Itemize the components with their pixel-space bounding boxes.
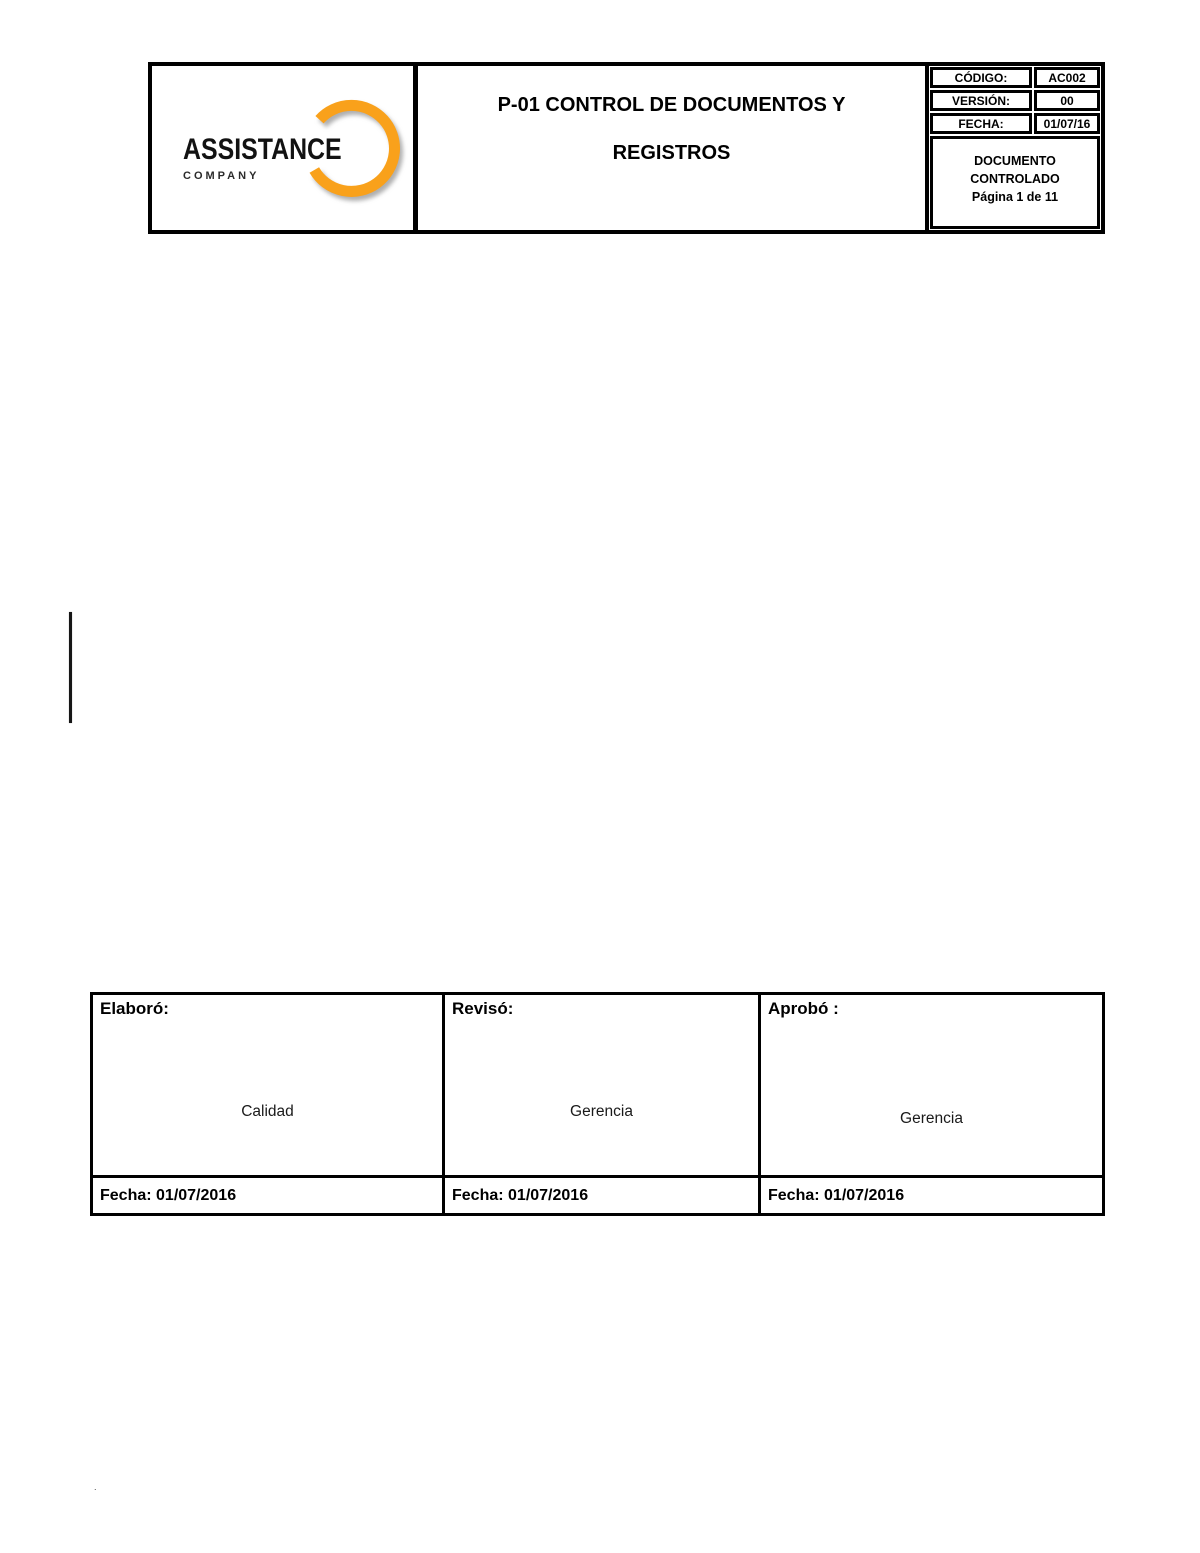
- company-subtitle-text: COMPANY: [183, 170, 259, 182]
- stray-period: .: [94, 1483, 97, 1492]
- controlled-document-note-line2: CONTROLADO: [933, 170, 1097, 188]
- signoff-role-elaboro: Elaboró:: [100, 999, 169, 1019]
- signoff-role-aprobo: Aprobó :: [768, 999, 839, 1019]
- signoff-date-cell-reviso: Fecha: 01/07/2016: [445, 1178, 761, 1213]
- signoff-date-aprobo: Fecha: 01/07/2016: [768, 1187, 904, 1205]
- document-title-line2: REGISTROS: [613, 142, 731, 165]
- meta-row-codigo: CÓDIGO: AC002: [930, 67, 1100, 88]
- meta-label-codigo: CÓDIGO:: [930, 67, 1032, 88]
- signoff-role-reviso: Revisó:: [452, 999, 513, 1019]
- controlled-document-note-line1: DOCUMENTO: [933, 152, 1097, 170]
- document-page: ASSISTANCE COMPANY P-01 CONTROL DE DOCUM…: [0, 0, 1200, 1553]
- document-meta-box: CÓDIGO: AC002 VERSIÓN: 00 FECHA: 01/07/1…: [929, 66, 1101, 230]
- controlled-document-note: DOCUMENTO CONTROLADO Página 1 de 11: [930, 136, 1100, 229]
- signoff-date-cell-elaboro: Fecha: 01/07/2016: [93, 1178, 445, 1213]
- document-title: P-01 CONTROL DE DOCUMENTOS Y REGISTROS: [418, 66, 929, 230]
- meta-row-version: VERSIÓN: 00: [930, 90, 1100, 111]
- signoff-row-names: Elaboró: Calidad Revisó: Gerencia Aprobó…: [93, 995, 1102, 1175]
- signoff-cell-reviso: Revisó: Gerencia: [445, 995, 761, 1175]
- company-logo: ASSISTANCE COMPANY: [152, 66, 418, 230]
- signoff-cell-elaboro: Elaboró: Calidad: [93, 995, 445, 1175]
- signoff-date-reviso: Fecha: 01/07/2016: [452, 1187, 588, 1205]
- document-title-line1: P-01 CONTROL DE DOCUMENTOS Y: [498, 94, 846, 117]
- signoff-table: Elaboró: Calidad Revisó: Gerencia Aprobó…: [90, 992, 1105, 1216]
- signoff-date-elaboro: Fecha: 01/07/2016: [100, 1187, 236, 1205]
- company-name-text: ASSISTANCE: [183, 133, 342, 167]
- signoff-name-elaboro: Calidad: [93, 1103, 442, 1121]
- meta-value-codigo: AC002: [1034, 67, 1100, 88]
- signoff-date-cell-aprobo: Fecha: 01/07/2016: [761, 1178, 1102, 1213]
- signoff-name-reviso: Gerencia: [445, 1103, 758, 1121]
- meta-label-version: VERSIÓN:: [930, 90, 1032, 111]
- revision-change-bar: [69, 612, 72, 723]
- meta-value-version: 00: [1034, 90, 1100, 111]
- controlled-document-note-line3: Página 1 de 11: [933, 188, 1097, 206]
- document-header-table: ASSISTANCE COMPANY P-01 CONTROL DE DOCUM…: [148, 62, 1105, 234]
- signoff-name-aprobo: Gerencia: [761, 1110, 1102, 1128]
- meta-row-fecha: FECHA: 01/07/16: [930, 113, 1100, 134]
- meta-value-fecha: 01/07/16: [1034, 113, 1100, 134]
- meta-label-fecha: FECHA:: [930, 113, 1032, 134]
- signoff-cell-aprobo: Aprobó : Gerencia: [761, 995, 1102, 1175]
- signoff-row-dates: Fecha: 01/07/2016 Fecha: 01/07/2016 Fech…: [93, 1175, 1102, 1213]
